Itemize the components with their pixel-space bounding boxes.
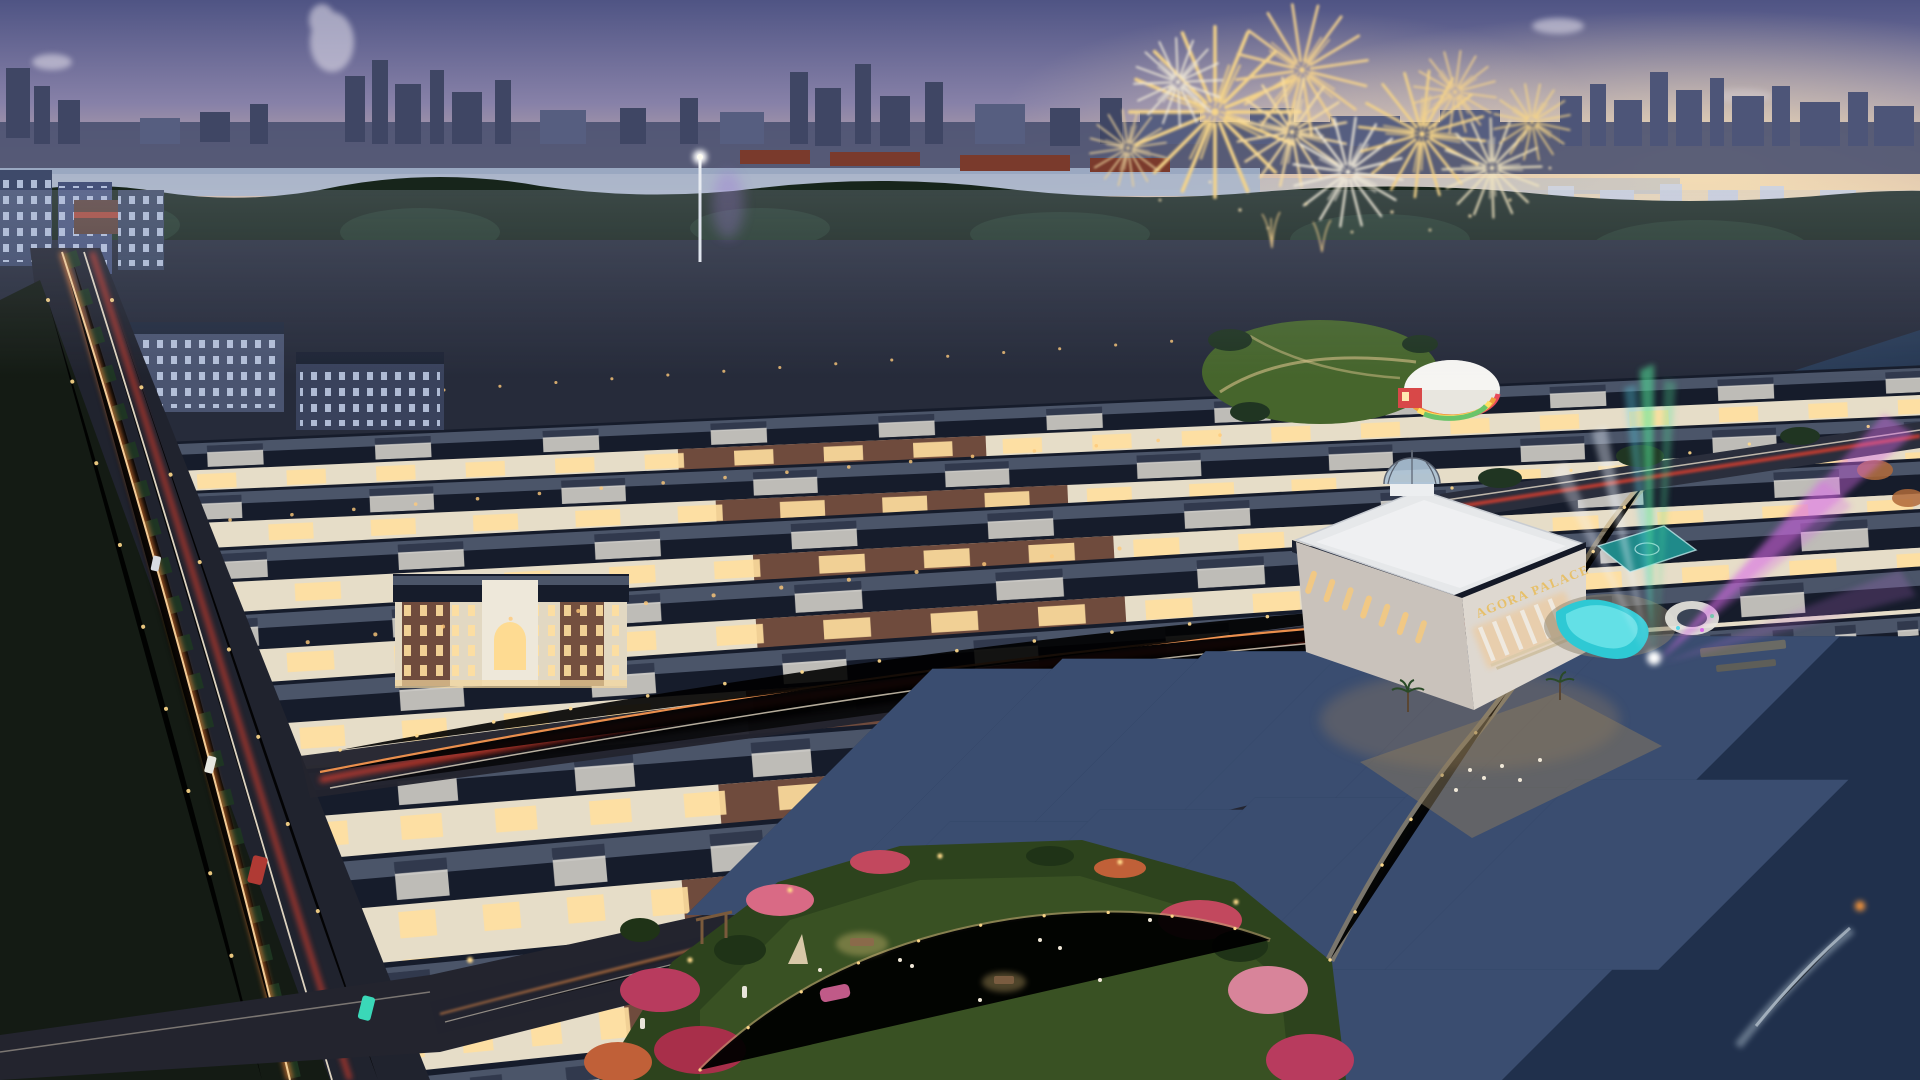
township-render: AGORA PALACE bbox=[0, 0, 1920, 1080]
depth-haze bbox=[0, 190, 1920, 380]
corner-brick-building bbox=[393, 574, 629, 688]
boat-light bbox=[1855, 901, 1865, 911]
scene-canvas: AGORA PALACE bbox=[0, 0, 1920, 1080]
